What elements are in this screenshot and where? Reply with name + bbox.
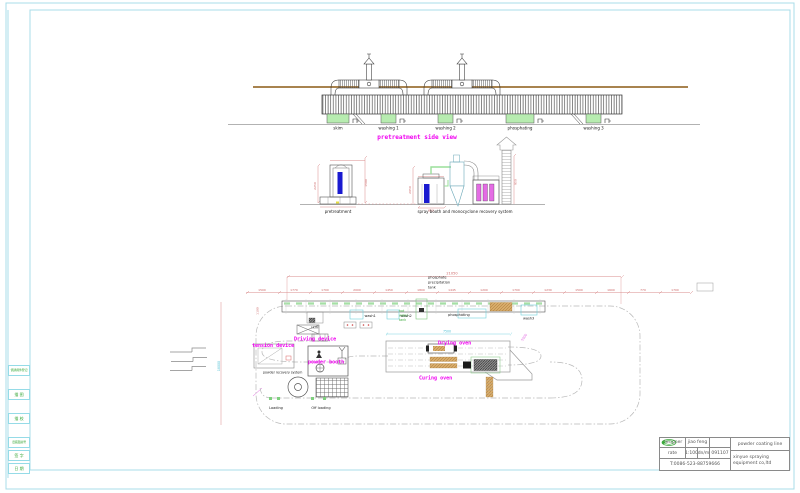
tank-label-phosphating: phosphating xyxy=(508,126,533,131)
oven-tan-block xyxy=(490,303,512,312)
side-view-title: pretreatment side view xyxy=(377,134,457,141)
dim-chain-8: 1700 xyxy=(512,288,520,292)
exit-ladder xyxy=(486,377,493,397)
tank-line-hatch xyxy=(322,95,622,114)
margin-row-3: 旧底图总号 xyxy=(8,437,30,448)
label-drying-oven: Drying oven xyxy=(438,341,471,347)
company-logo-cell xyxy=(710,438,730,447)
dosing-dots xyxy=(347,324,370,326)
cyclone-elbow-duct xyxy=(464,161,478,180)
label-off-loading: Off loading xyxy=(311,406,330,410)
label-powder-recovery: powder recovery system xyxy=(263,371,302,375)
dim-chain-0: 1500 xyxy=(258,288,266,292)
dim-chain-1: 1770 xyxy=(290,288,298,292)
dim-chain-values: 1500 1770 1700 2000 1450 1800 1445 1200 … xyxy=(258,288,679,292)
exhaust-unit-2 xyxy=(424,54,500,95)
hot-water-note-3: tank xyxy=(399,318,406,322)
dim-chain-9: 1230 xyxy=(544,288,552,292)
green-duct-2 xyxy=(444,180,448,186)
up-arrow-icon xyxy=(497,137,516,150)
title-block: designer jiao feng rate 1:100 dn/m 09110… xyxy=(659,437,790,471)
station-wash1: wash1 xyxy=(365,314,376,318)
phosphate-note-1: phosphate xyxy=(428,276,447,280)
project-title: powder coating line xyxy=(731,438,789,451)
drawing-number: 091107 xyxy=(710,448,730,457)
dim-band-left: 1100 xyxy=(256,307,260,315)
dim-chain-3: 2000 xyxy=(353,288,361,292)
filter-cartridges xyxy=(477,184,495,201)
dim-2050: 2050 xyxy=(408,186,412,194)
plan-tank-line xyxy=(282,299,545,328)
green-duct xyxy=(431,167,451,174)
margin-row-0: 借通用件登记 xyxy=(8,365,30,376)
dim-950: 950 xyxy=(514,179,518,185)
company-name: xinyue spraying equipment co,ltd xyxy=(731,451,789,470)
dim-chain-12: 770 xyxy=(640,288,646,292)
rate-label: rate xyxy=(660,448,686,457)
dim-right-diagonal: 5000 xyxy=(520,333,528,342)
hot-water-note-2: water xyxy=(399,314,409,318)
sheet-frame xyxy=(6,3,794,489)
side-view: skim washing 1 washing 2 phosphating was… xyxy=(228,54,700,141)
tank-label-washing3: washing 3 xyxy=(583,126,604,131)
margin-row-5: 日 期 xyxy=(8,463,30,474)
label-loading: Loading xyxy=(269,406,283,410)
workpiece-blue xyxy=(424,184,430,203)
dim-1500: 1500 xyxy=(364,179,368,187)
dim-left-vertical: 18000 xyxy=(217,361,221,371)
margin-row-1: 描 图 xyxy=(8,389,30,400)
workpiece-blue xyxy=(338,172,343,194)
dim-chain-7: 1200 xyxy=(480,288,488,292)
station-wash3: wash3 xyxy=(523,317,534,321)
designer-name: jiao feng xyxy=(686,438,710,447)
tank-label-washing1: washing 1 xyxy=(378,126,399,131)
phosphate-note-3: tank xyxy=(428,286,437,290)
margin-row-2: 描 校 xyxy=(8,413,30,424)
rate-value: 1:100 xyxy=(686,448,698,457)
precipitation-tank-symbol xyxy=(697,283,713,291)
dim-chain-6: 1445 xyxy=(448,288,456,292)
pretreatment-tanks xyxy=(327,114,601,123)
dim-2250: 2250 xyxy=(313,182,317,190)
elevation-views: 2250 1500 pretreatment xyxy=(300,137,545,214)
margin-row-4: 签 字 xyxy=(8,450,30,461)
unit-value: dn/m xyxy=(698,448,710,457)
powder-recovery-system xyxy=(288,377,348,397)
flow-arrows xyxy=(170,348,207,371)
dim-chain-13: 1700 xyxy=(671,288,679,292)
dim-chain-10: 1500 xyxy=(575,288,583,292)
loading-marks xyxy=(269,397,326,400)
engineering-drawing: skim washing 1 washing 2 phosphating was… xyxy=(0,0,800,493)
phone-number: T:0086-523-88759666 xyxy=(660,459,730,470)
label-powder-booth: powder booth xyxy=(308,360,344,366)
pretreatment-elevation-label: pretreatment xyxy=(325,209,352,214)
label-tension-device: tension device xyxy=(252,343,294,349)
station-phosphating: phosphating xyxy=(448,313,470,317)
hot-water-note-1: hot xyxy=(399,309,405,313)
drawing-sheet: skim washing 1 washing 2 phosphating was… xyxy=(0,0,800,493)
dim-chain-5: 1800 xyxy=(417,288,425,292)
exhaust-stack xyxy=(502,150,511,204)
dim-oven: 7500 xyxy=(443,330,451,334)
phosphate-note-2: precipitation xyxy=(428,281,450,285)
exhaust-unit-1 xyxy=(331,54,407,95)
dim-chain-2: 1700 xyxy=(321,288,329,292)
tank-label-washing2: washing 2 xyxy=(435,126,456,131)
cyclone-cone xyxy=(450,186,464,206)
plan-view: 21050 1500 1770 1700 2000 1450 1800 1445… xyxy=(170,272,713,426)
dim-chain-11: 1600 xyxy=(607,288,615,292)
dim-chain-4: 1450 xyxy=(385,288,393,292)
pretreatment-elevation: 2250 1500 pretreatment xyxy=(313,156,368,214)
dim-overall: 21050 xyxy=(446,272,457,276)
spray-booth-elevation: 2050 950 850 spray booth and monocyclone… xyxy=(408,137,518,214)
label-curing-oven: Curing oven xyxy=(419,376,452,382)
label-driving-device: Driving device xyxy=(294,337,336,343)
spray-booth-label: spray booth and monocyclone recovery sys… xyxy=(417,209,512,214)
company-name-line2: equipment co,ltd xyxy=(733,461,771,467)
tank-label-skim: skim xyxy=(333,126,343,131)
